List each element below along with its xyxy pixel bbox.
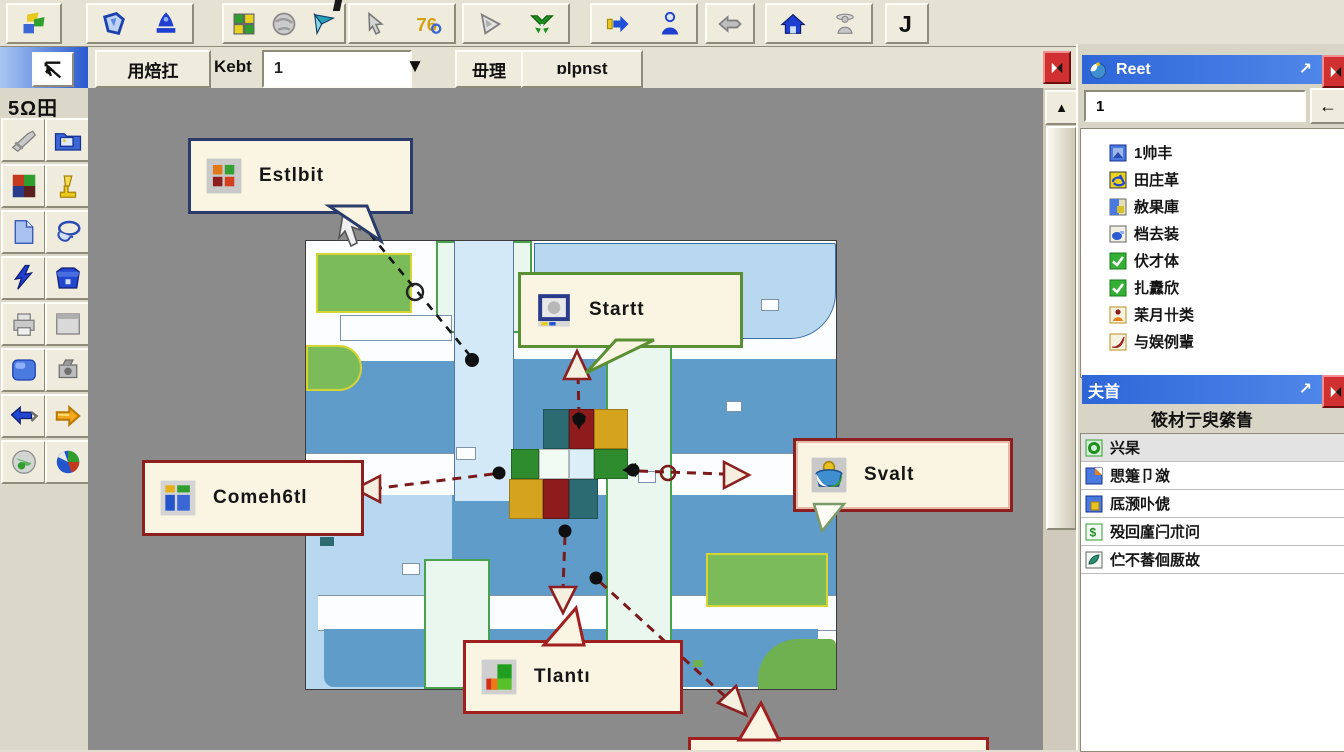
bell-button[interactable] bbox=[140, 5, 192, 42]
globe-gray-icon bbox=[9, 447, 39, 477]
window-grid-icon bbox=[230, 10, 258, 38]
layers-colorful-icon bbox=[20, 10, 48, 38]
layer-label: 扎纛欣 bbox=[1134, 277, 1179, 298]
seventy-six-icon: 76 bbox=[414, 10, 442, 38]
layer-list-item[interactable]: 伏才体 bbox=[1081, 247, 1344, 274]
svg-text:J: J bbox=[899, 11, 912, 37]
legend-header: 筱材亍臾綮眚 bbox=[1082, 404, 1322, 433]
donut-green-icon bbox=[1085, 439, 1103, 457]
globe-button[interactable] bbox=[1, 440, 46, 484]
back-arrow-button[interactable]: ← bbox=[1310, 88, 1344, 124]
grid-cell bbox=[539, 449, 569, 479]
arrow-right-orange-icon bbox=[53, 401, 83, 431]
right-dock-panel: Reet ↗ ← 1帅丰 田庄革 赦果庫 档去装 伏才体 扎纛欣 苿月卄类 bbox=[1076, 44, 1344, 750]
layer-combobox[interactable]: 1 bbox=[262, 50, 412, 88]
grid-cell bbox=[543, 479, 569, 519]
close-bowtie-icon bbox=[1329, 65, 1343, 79]
kebt-label: Kebt bbox=[214, 57, 252, 77]
open-button[interactable]: ɒlpnst bbox=[521, 50, 643, 88]
home-button[interactable] bbox=[767, 5, 819, 42]
map-region bbox=[316, 253, 412, 313]
panel-button[interactable] bbox=[45, 302, 90, 346]
callout-comeh6tl[interactable]: Comeh6tl bbox=[142, 460, 364, 536]
callout-label: Tlantı bbox=[534, 666, 591, 688]
layer-list-item[interactable]: 赦果庫 bbox=[1081, 193, 1344, 220]
callout-tail bbox=[721, 699, 791, 741]
callout-svalt[interactable]: Svalt bbox=[793, 438, 1013, 512]
grid-cell bbox=[569, 479, 598, 519]
pliers-icon bbox=[9, 125, 39, 155]
green-v-button[interactable] bbox=[516, 5, 568, 42]
toolbar-group bbox=[222, 3, 346, 44]
map-detail bbox=[761, 299, 779, 311]
layer-list-item[interactable]: 田庄革 bbox=[1081, 166, 1344, 193]
flag-teal-icon bbox=[310, 10, 338, 38]
statue-gray-icon bbox=[831, 10, 859, 38]
sphere-gray-icon bbox=[270, 10, 298, 38]
close-bowtie-icon bbox=[1050, 61, 1064, 75]
square-blue-gold-icon bbox=[1085, 495, 1103, 513]
callout-tail bbox=[576, 339, 666, 379]
callout-startt[interactable]: Startt bbox=[518, 272, 743, 348]
legend-label: 殁回廑闩朮问 bbox=[1110, 521, 1200, 542]
map-corridor bbox=[606, 337, 672, 689]
toolbar-group bbox=[590, 3, 698, 44]
sphere-button[interactable] bbox=[264, 5, 304, 42]
pie-chart-button[interactable] bbox=[45, 440, 90, 484]
map-region bbox=[340, 315, 452, 341]
swoosh-red-icon bbox=[1109, 333, 1127, 351]
folder-image-icon bbox=[53, 125, 83, 155]
callout-label: Estlbit bbox=[259, 165, 324, 187]
arrow-left-button[interactable] bbox=[707, 5, 753, 42]
startt-icon bbox=[535, 291, 573, 329]
legend-list-item[interactable]: 伫不萫佪厫故 bbox=[1081, 546, 1344, 574]
map-canvas[interactable]: Estlbit Startt Svalt Comeh6tl Tlantı bbox=[88, 88, 1042, 750]
camera-button[interactable] bbox=[45, 348, 90, 392]
undock-arrow-icon[interactable]: ↗ bbox=[1299, 59, 1312, 79]
callout-label: Comeh6tl bbox=[213, 487, 308, 509]
legend-window-title: 夫首 bbox=[1088, 378, 1120, 402]
person-button[interactable] bbox=[644, 5, 696, 42]
map-corridor bbox=[454, 241, 514, 501]
letter-j-icon: J bbox=[893, 10, 921, 38]
layers-colorful-button[interactable] bbox=[8, 5, 60, 42]
layers-window-titlebar: Reet ↗ bbox=[1082, 55, 1322, 84]
printer-gray-icon bbox=[9, 309, 39, 339]
callout-estlbit[interactable]: Estlbit bbox=[188, 138, 413, 214]
arrow-right-button[interactable] bbox=[592, 5, 644, 42]
select-arrow-button[interactable] bbox=[32, 52, 74, 87]
arrow-right-blue-icon bbox=[604, 10, 632, 38]
layer-list-item[interactable]: 苿月卄类 bbox=[1081, 301, 1344, 328]
legend-window-close-button[interactable] bbox=[1322, 375, 1344, 408]
lamp-yellow-icon bbox=[53, 171, 83, 201]
color-quad-icon bbox=[9, 171, 39, 201]
map-region bbox=[306, 345, 362, 391]
callout-label: Startt bbox=[589, 299, 645, 321]
grid-cell bbox=[594, 449, 628, 479]
layer-list-item[interactable]: 扎纛欣 bbox=[1081, 274, 1344, 301]
box-button[interactable] bbox=[45, 256, 90, 300]
arrow-left-blue-icon bbox=[9, 401, 39, 431]
canvas-close-button[interactable] bbox=[1043, 51, 1071, 84]
arrow-left-tool-button[interactable] bbox=[1, 394, 46, 438]
manage-button[interactable]: 毌理 bbox=[455, 50, 523, 88]
cursor-tool-button[interactable] bbox=[350, 5, 402, 42]
polygon-button[interactable] bbox=[88, 5, 140, 42]
layer-list-item[interactable]: 1帅丰 bbox=[1081, 139, 1344, 166]
person-orange-icon bbox=[1109, 306, 1127, 324]
legend-label: 愳箑卩潋 bbox=[1110, 465, 1170, 486]
select-arrow-icon bbox=[42, 59, 64, 81]
checkmark-green-icon bbox=[1109, 252, 1127, 270]
symbol-green-dollar-icon: $ bbox=[1085, 523, 1103, 541]
layers-window-title: Reet bbox=[1116, 61, 1151, 79]
scrollbar-up-button[interactable]: ▲ bbox=[1045, 90, 1078, 125]
legend-list-item[interactable]: $ 殁回廑闩朮问 bbox=[1081, 518, 1344, 546]
layer-refresh-yellow-icon bbox=[1109, 171, 1127, 189]
lamp-button[interactable] bbox=[45, 164, 90, 208]
page-blue-orange-icon bbox=[1085, 467, 1103, 485]
polygon-blue-icon bbox=[100, 10, 128, 38]
svg-text:$: $ bbox=[1090, 525, 1097, 539]
arrow-left-gray-icon bbox=[716, 10, 744, 38]
sidebar-header-band bbox=[0, 47, 88, 88]
callout-tail bbox=[808, 503, 858, 535]
map-detail bbox=[402, 563, 420, 575]
toolbar-group bbox=[6, 3, 62, 44]
nav-button[interactable]: 用焙扛 bbox=[95, 50, 211, 88]
layer-label: 赦果庫 bbox=[1134, 196, 1179, 217]
grid-cell bbox=[543, 409, 569, 449]
scrollbar-thumb[interactable] bbox=[1046, 126, 1077, 530]
lightning-button[interactable] bbox=[1, 256, 46, 300]
grid-cell bbox=[569, 449, 594, 479]
panel-gray-icon bbox=[53, 309, 83, 339]
layers-list: 1帅丰 田庄革 赦果庫 档去装 伏才体 扎纛欣 苿月卄类 与娱例輩 bbox=[1080, 128, 1344, 378]
pie-chart-icon bbox=[53, 447, 83, 477]
toolbar-group bbox=[705, 3, 755, 44]
svalt-icon bbox=[810, 456, 848, 494]
layer-label: 伏才体 bbox=[1134, 250, 1179, 271]
comeh6tl-icon bbox=[159, 479, 197, 517]
map-detail bbox=[320, 537, 334, 546]
legend-list-item[interactable]: 兴杲 bbox=[1081, 434, 1344, 462]
box-blue-icon bbox=[53, 263, 83, 293]
leaf-teal-icon bbox=[1085, 551, 1103, 569]
layer-image-blue-icon bbox=[1109, 144, 1127, 162]
grid-cell bbox=[569, 409, 594, 449]
lasso-blue-icon bbox=[53, 217, 83, 247]
callout-tlanti[interactable]: Tlantı bbox=[463, 640, 683, 714]
combobox-dropdown-arrow[interactable]: ▼ bbox=[398, 50, 432, 84]
layer-blob-blue-icon bbox=[1109, 225, 1127, 243]
map-region bbox=[706, 553, 828, 607]
layer-label: 与娱例輩 bbox=[1134, 331, 1194, 352]
window-grid-button[interactable] bbox=[224, 5, 264, 42]
legend-label: 伫不萫佪厫故 bbox=[1110, 549, 1200, 570]
tlanti-icon bbox=[480, 658, 518, 696]
callout-partial-bottom[interactable] bbox=[688, 737, 989, 750]
legend-label: 厎滪卟俿 bbox=[1110, 493, 1170, 514]
layer-list-item[interactable]: 与娱例輩 bbox=[1081, 328, 1344, 355]
person-blue-icon bbox=[656, 10, 684, 38]
toolbar-group: 76 bbox=[348, 3, 456, 44]
layer-label: 档去装 bbox=[1134, 223, 1179, 244]
callout-tail bbox=[536, 604, 596, 646]
toolbar-group bbox=[765, 3, 873, 44]
toolbar-group bbox=[86, 3, 194, 44]
application-window: { "toolbar_primary": { "seventy_six_text… bbox=[0, 0, 1344, 750]
grid-cell bbox=[509, 479, 543, 519]
map-detail bbox=[456, 447, 476, 460]
undock-arrow-icon[interactable]: ↗ bbox=[1299, 379, 1312, 399]
rounded-blue-icon bbox=[9, 355, 39, 385]
bell-blue-icon bbox=[152, 10, 180, 38]
layer-list-item[interactable]: 档去装 bbox=[1081, 220, 1344, 247]
pointer-triangle-icon bbox=[476, 10, 504, 38]
legend-window-titlebar: 夫首 ↗ bbox=[1082, 375, 1322, 404]
lightning-blue-icon bbox=[9, 263, 39, 293]
sidebar-header-label: 5Ω田 bbox=[8, 92, 58, 121]
grid-cell bbox=[594, 409, 628, 449]
legend-list-item[interactable]: 愳箑卩潋 bbox=[1081, 462, 1344, 490]
map-detail bbox=[726, 401, 742, 412]
pointer-button[interactable] bbox=[464, 5, 516, 42]
tool-grid bbox=[1, 118, 87, 484]
seventy-six-button[interactable]: 76 bbox=[402, 5, 454, 42]
close-bowtie-icon bbox=[1329, 385, 1343, 399]
page-button[interactable] bbox=[1, 210, 46, 254]
lasso-button[interactable] bbox=[45, 210, 90, 254]
toolbar-group: J bbox=[885, 3, 929, 44]
map-detail bbox=[638, 471, 656, 483]
layers-window-icon bbox=[1088, 60, 1108, 80]
page-blue-icon bbox=[9, 217, 39, 247]
statue-button[interactable] bbox=[819, 5, 871, 42]
callout-tail bbox=[321, 205, 391, 245]
legend-list: 兴杲 愳箑卩潋 厎滪卟俿 $ 殁回廑闩朮问 伫不萫佪厫故 bbox=[1080, 433, 1344, 752]
tool-sidebar: 5Ω田 bbox=[0, 88, 90, 750]
layer-label: 田庄革 bbox=[1134, 169, 1179, 190]
rounded-rect-button[interactable] bbox=[1, 348, 46, 392]
camera-gray-icon bbox=[53, 355, 83, 385]
layers-window-close-button[interactable] bbox=[1322, 55, 1344, 88]
canvas-vertical-scrollbar[interactable]: ▲ bbox=[1042, 88, 1077, 750]
estlbit-icon bbox=[205, 157, 243, 195]
green-v-arrows-icon bbox=[528, 10, 556, 38]
home-blue-icon bbox=[779, 10, 807, 38]
folder-image-button[interactable] bbox=[45, 118, 90, 162]
main-toolbar: 76 J bbox=[0, 0, 1344, 47]
callout-label: Svalt bbox=[864, 464, 914, 486]
letter-j-button[interactable]: J bbox=[887, 5, 927, 42]
toolbar-group bbox=[462, 3, 570, 44]
arrow-right-orange-button[interactable] bbox=[45, 394, 90, 438]
layer-blue-yellow-icon bbox=[1109, 198, 1127, 216]
grid-cell bbox=[511, 449, 539, 479]
color-quad-button[interactable] bbox=[1, 164, 46, 208]
checkmark-green-icon bbox=[1109, 279, 1127, 297]
layer-search-input[interactable] bbox=[1084, 90, 1306, 122]
printer-button[interactable] bbox=[1, 302, 46, 346]
cursor-arrow-icon bbox=[362, 10, 390, 38]
legend-label: 兴杲 bbox=[1110, 437, 1140, 458]
layer-label: 苿月卄类 bbox=[1134, 304, 1194, 325]
pliers-button[interactable] bbox=[1, 118, 46, 162]
layer-label: 1帅丰 bbox=[1134, 142, 1172, 163]
legend-list-item[interactable]: 厎滪卟俿 bbox=[1081, 490, 1344, 518]
